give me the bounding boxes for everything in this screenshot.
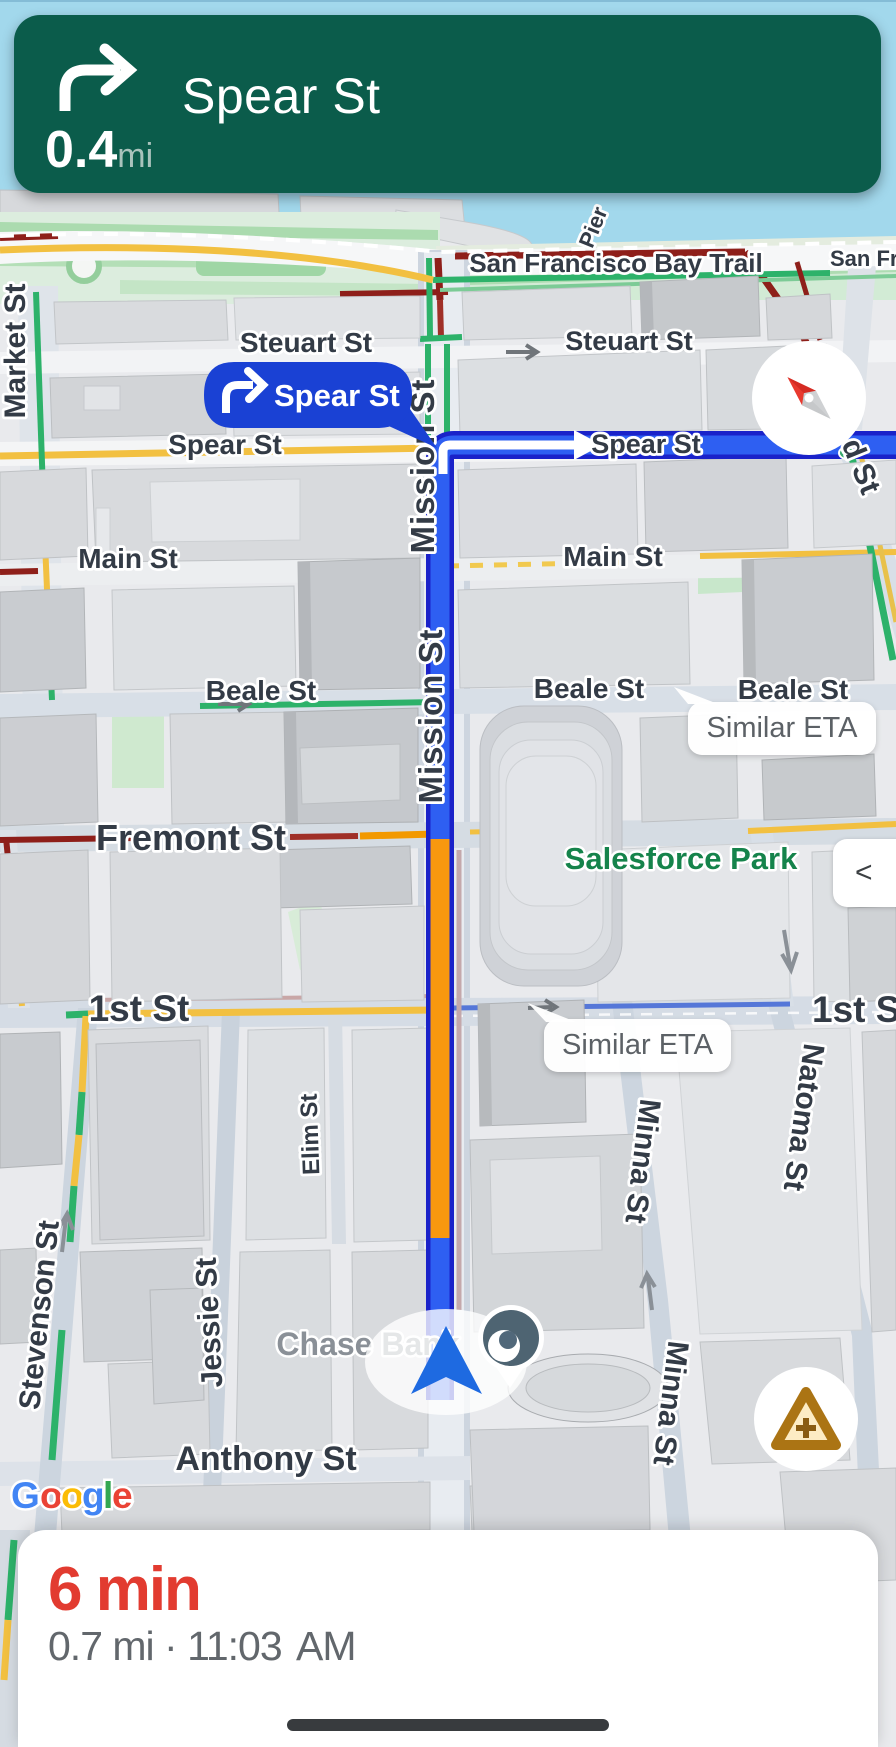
svg-text:G: G <box>11 1475 40 1516</box>
svg-text:Jessie St: Jessie St <box>190 1257 230 1389</box>
svg-text:San Francisco Bay Trail: San Francisco Bay Trail <box>469 248 762 278</box>
svg-text:Spear St: Spear St <box>274 378 400 413</box>
svg-text:Main St: Main St <box>78 543 178 574</box>
svg-text:Beale St: Beale St <box>738 674 849 705</box>
svg-text:Mission St: Mission St <box>412 628 449 803</box>
svg-text:Beale St: Beale St <box>534 673 645 704</box>
svg-text:Beale St: Beale St <box>206 675 317 706</box>
svg-text:1st S: 1st S <box>812 989 896 1030</box>
svg-text:e: e <box>112 1475 133 1516</box>
svg-text:Spear St: Spear St <box>591 429 701 459</box>
svg-text:Main St: Main St <box>563 541 663 572</box>
svg-text:Steuart St: Steuart St <box>565 326 693 356</box>
svg-text:Anthony St: Anthony St <box>175 1440 356 1478</box>
svg-text:Market St: Market St <box>0 283 32 418</box>
svg-text:o: o <box>40 1475 63 1516</box>
svg-text:o: o <box>61 1475 84 1516</box>
svg-text:Steuart St: Steuart St <box>240 327 372 358</box>
svg-text:San Fran: San Fran <box>830 246 896 271</box>
svg-text:Elim St: Elim St <box>296 1093 326 1175</box>
svg-text:Fremont St: Fremont St <box>96 817 286 858</box>
svg-text:g: g <box>82 1475 105 1516</box>
svg-text:1st St: 1st St <box>89 988 190 1029</box>
svg-text:Salesforce Park: Salesforce Park <box>565 841 798 876</box>
